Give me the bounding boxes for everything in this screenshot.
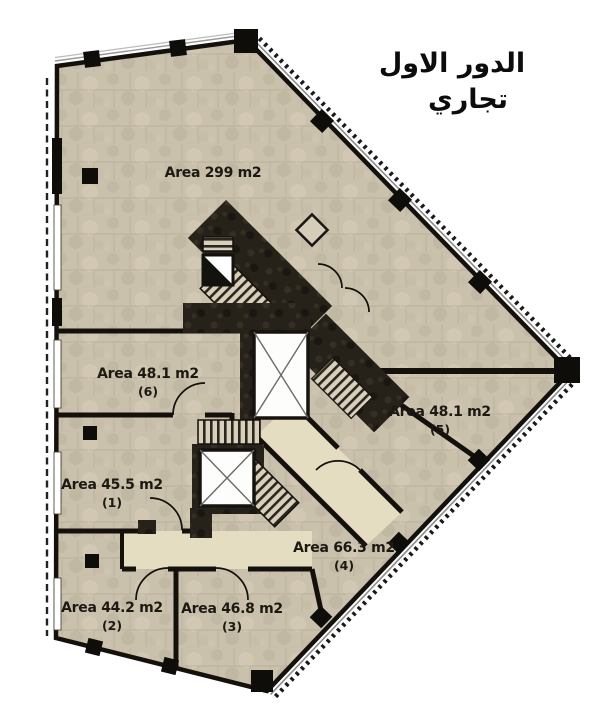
title-line-1: الدور الاول [379,48,525,79]
page-title: الدور الاول تجاري [379,48,525,115]
label-area-6: Area 48.1 m2 [97,366,199,382]
elevator-shaft-2 [200,450,254,506]
label-area-main: Area 299 m2 [165,165,262,181]
label-area-2: Area 44.2 m2 [61,600,163,616]
label-area-4: Area 66.3 m2 [293,540,395,556]
floor-plan-page: Area 299 m2 Area 48.1 m2 (6) Area 48.1 m… [0,0,614,720]
title-line-2: تجاري [428,84,508,115]
number-area-1: (1) [102,495,122,510]
label-area-5: Area 48.1 m2 [389,404,491,420]
floor-plan-drawing: Area 299 m2 Area 48.1 m2 (6) Area 48.1 m… [0,0,614,720]
number-area-5: (5) [430,422,450,437]
label-area-3: Area 46.8 m2 [181,601,283,617]
number-area-6: (6) [138,384,158,399]
number-area-3: (3) [222,619,242,634]
number-area-2: (2) [102,618,122,633]
elevator-shaft-1 [254,332,308,418]
number-area-4: (4) [334,558,354,573]
label-area-1: Area 45.5 m2 [61,477,163,493]
